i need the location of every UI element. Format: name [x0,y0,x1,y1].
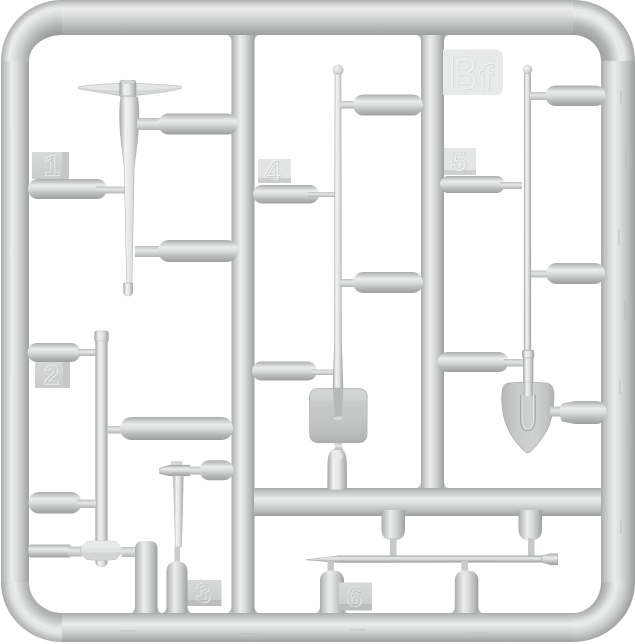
svg-text:5: 5 [451,146,467,177]
svg-text:f: f [480,59,493,98]
svg-text:3: 3 [197,578,213,609]
svg-text:2: 2 [45,360,61,391]
svg-text:1: 1 [45,151,62,184]
svg-text:B: B [451,47,478,101]
svg-text:6: 6 [348,582,364,613]
svg-text:4: 4 [266,156,281,186]
